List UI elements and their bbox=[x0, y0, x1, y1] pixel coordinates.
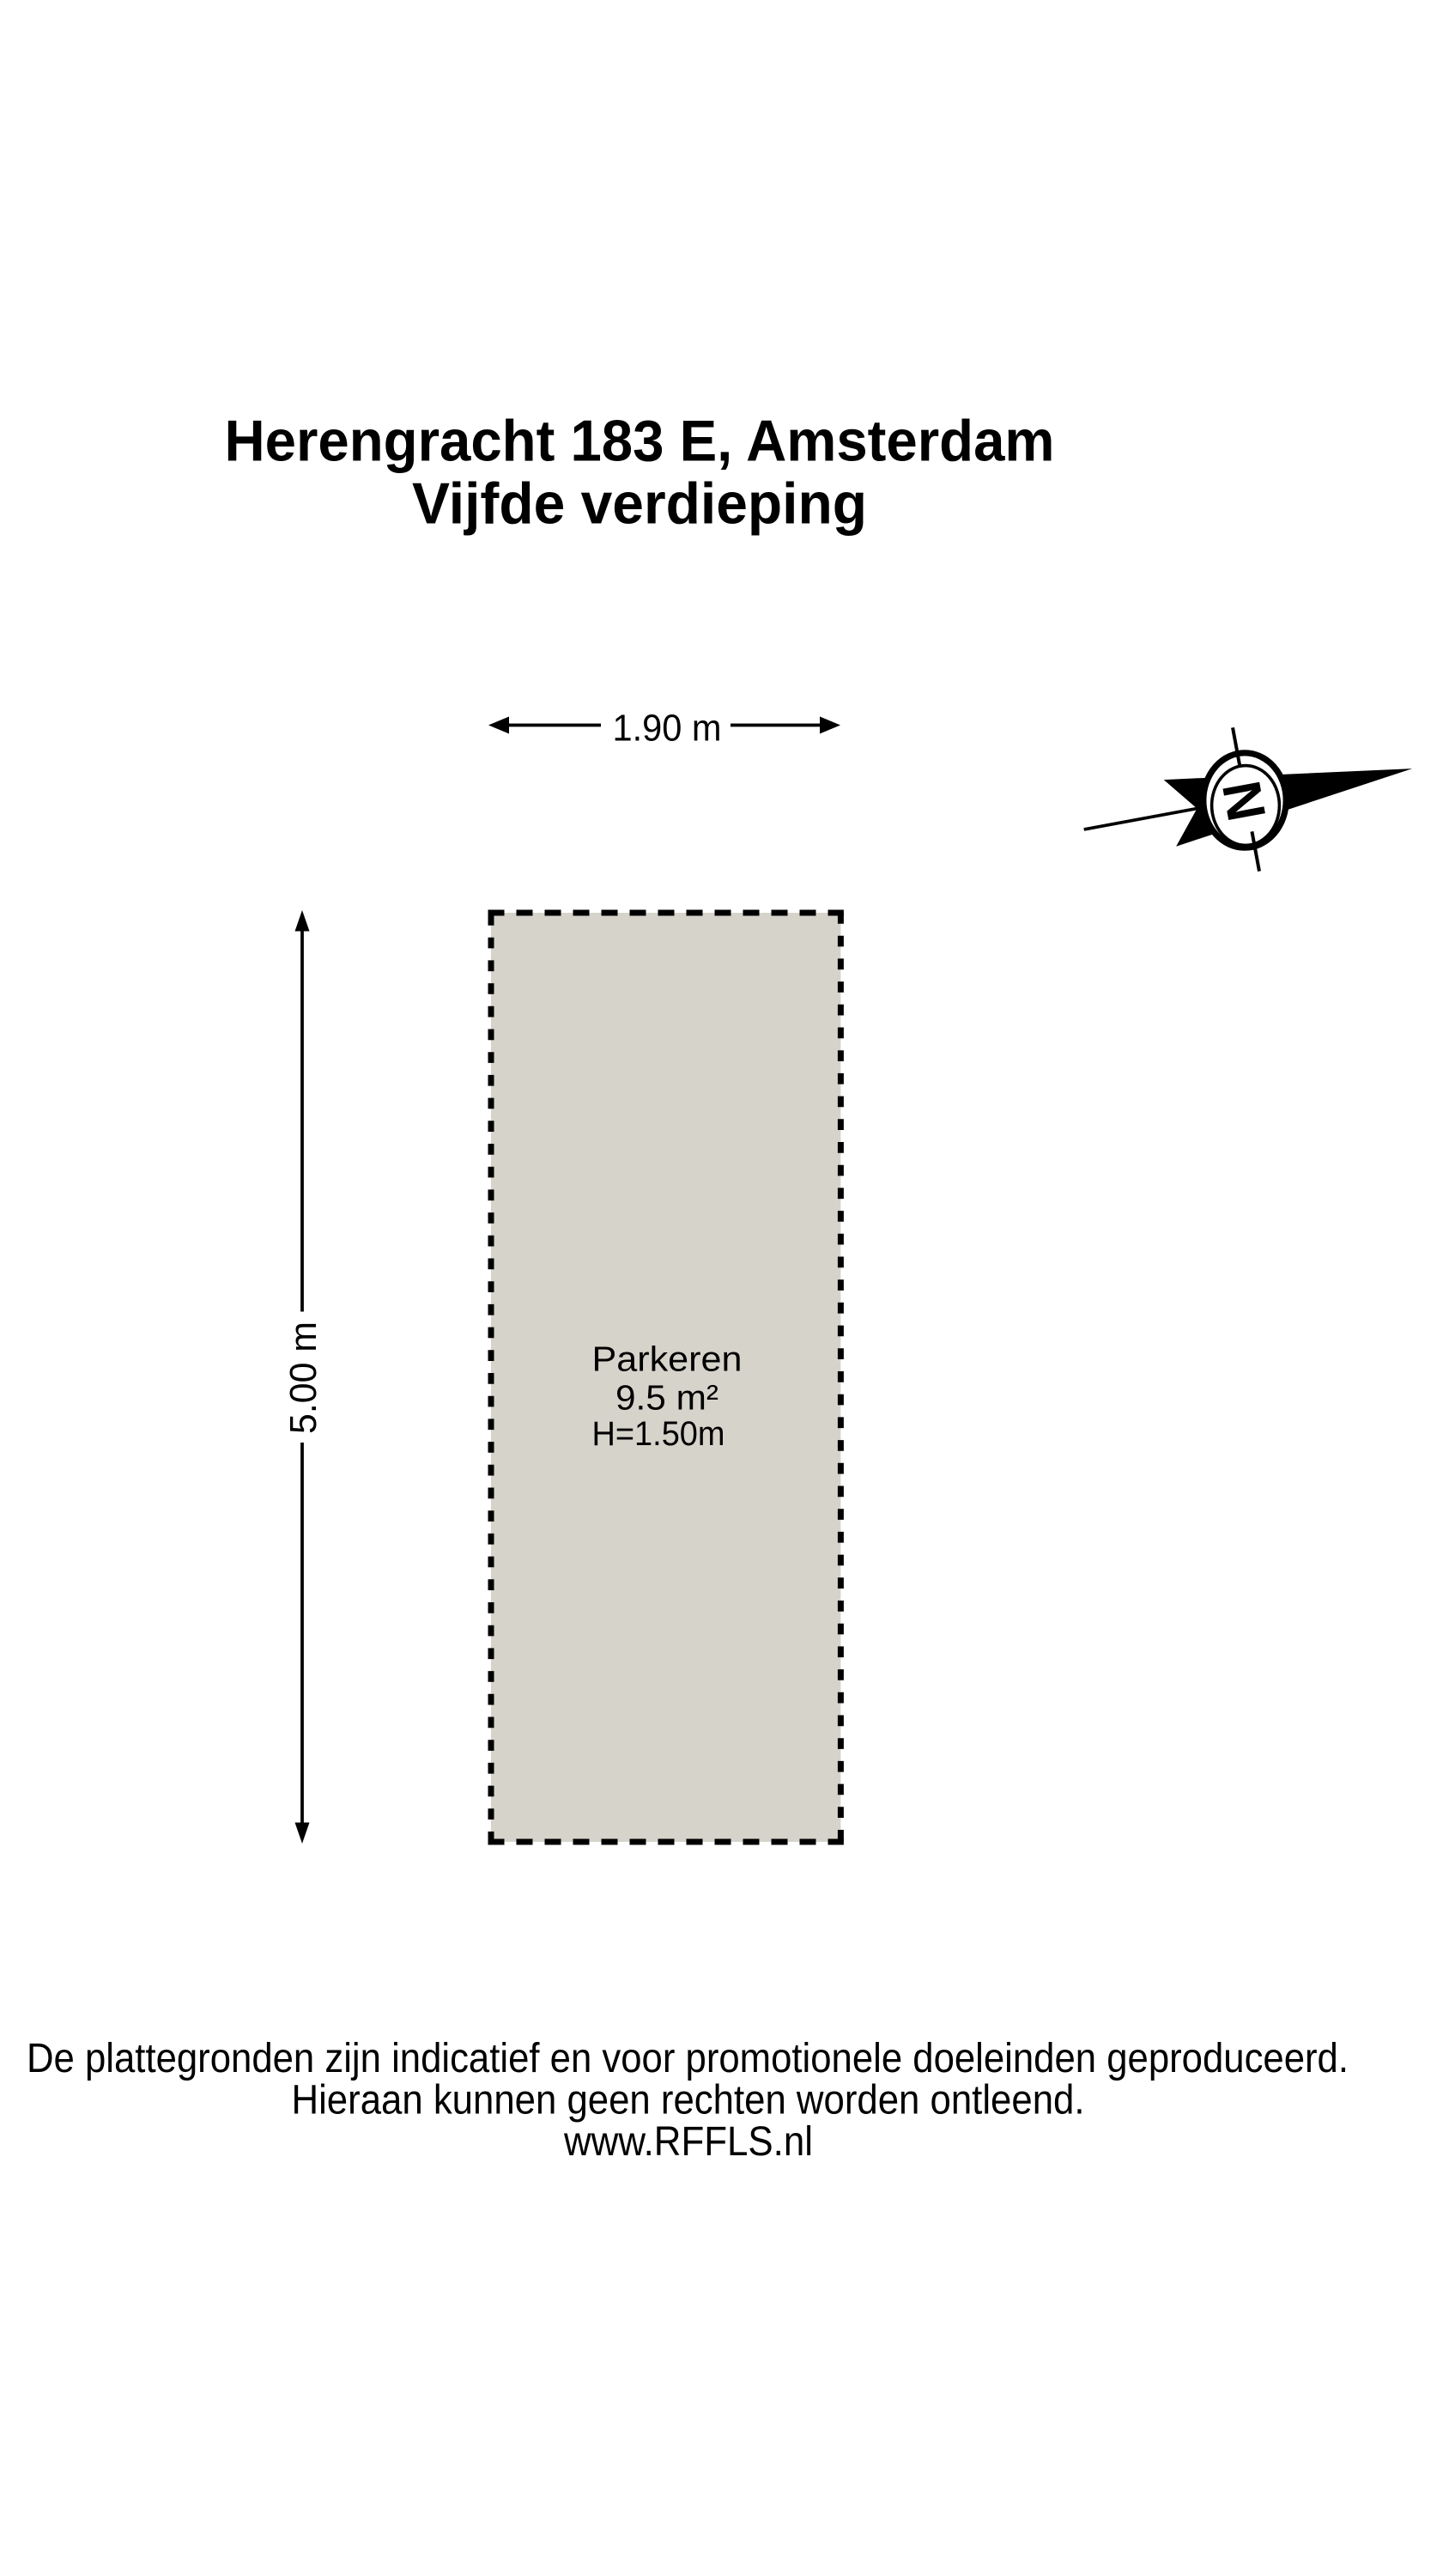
svg-text:9.5 m²: 9.5 m² bbox=[615, 1378, 718, 1418]
svg-text:H=1.50m: H=1.50m bbox=[592, 1415, 725, 1453]
svg-text:Parkeren: Parkeren bbox=[592, 1340, 743, 1379]
svg-text:1.90 m: 1.90 m bbox=[613, 708, 722, 750]
svg-text:www.RFFLS.nl: www.RFFLS.nl bbox=[563, 2119, 813, 2165]
svg-text:Herengracht 183 E, Amsterdam: Herengracht 183 E, Amsterdam bbox=[225, 409, 1055, 474]
svg-text:Vijfde verdieping: Vijfde verdieping bbox=[412, 471, 867, 537]
svg-text:Hieraan kunnen geen rechten wo: Hieraan kunnen geen rechten worden ontle… bbox=[292, 2078, 1085, 2123]
svg-text:De plattegronden zijn indicati: De plattegronden zijn indicatief en voor… bbox=[27, 2036, 1349, 2081]
svg-text:5.00 m: 5.00 m bbox=[282, 1321, 324, 1434]
